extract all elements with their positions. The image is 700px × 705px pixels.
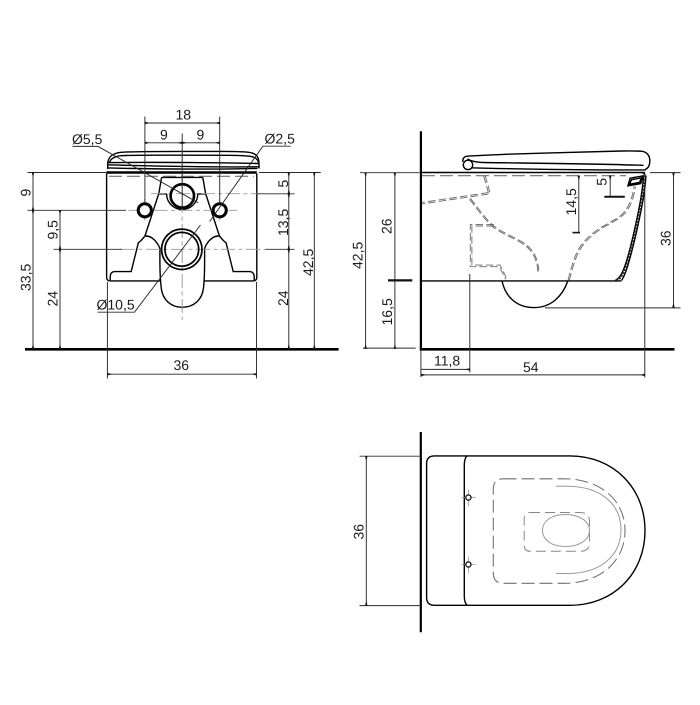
svg-text:9,5: 9,5 — [45, 220, 61, 240]
svg-text:33,5: 33,5 — [18, 264, 34, 291]
svg-text:54: 54 — [523, 359, 539, 375]
svg-text:16,5: 16,5 — [379, 298, 395, 325]
svg-text:36: 36 — [658, 230, 674, 246]
svg-text:5: 5 — [275, 180, 291, 188]
svg-text:5: 5 — [594, 178, 610, 186]
svg-text:18: 18 — [176, 107, 192, 123]
svg-text:9: 9 — [197, 127, 205, 143]
svg-text:9: 9 — [160, 127, 168, 143]
svg-text:Ø2,5: Ø2,5 — [265, 131, 296, 147]
svg-text:13,5: 13,5 — [275, 209, 291, 236]
svg-text:9: 9 — [18, 189, 34, 197]
svg-text:36: 36 — [351, 524, 367, 540]
svg-text:24: 24 — [275, 290, 291, 306]
svg-text:42,5: 42,5 — [350, 242, 366, 269]
svg-text:Ø10,5: Ø10,5 — [97, 297, 135, 313]
svg-text:11,8: 11,8 — [434, 353, 460, 369]
svg-text:42,5: 42,5 — [300, 249, 316, 276]
svg-text:26: 26 — [379, 218, 395, 234]
svg-text:24: 24 — [45, 291, 61, 307]
svg-text:Ø5,5: Ø5,5 — [72, 131, 103, 147]
svg-text:14,5: 14,5 — [563, 188, 579, 215]
svg-text:36: 36 — [174, 357, 190, 373]
